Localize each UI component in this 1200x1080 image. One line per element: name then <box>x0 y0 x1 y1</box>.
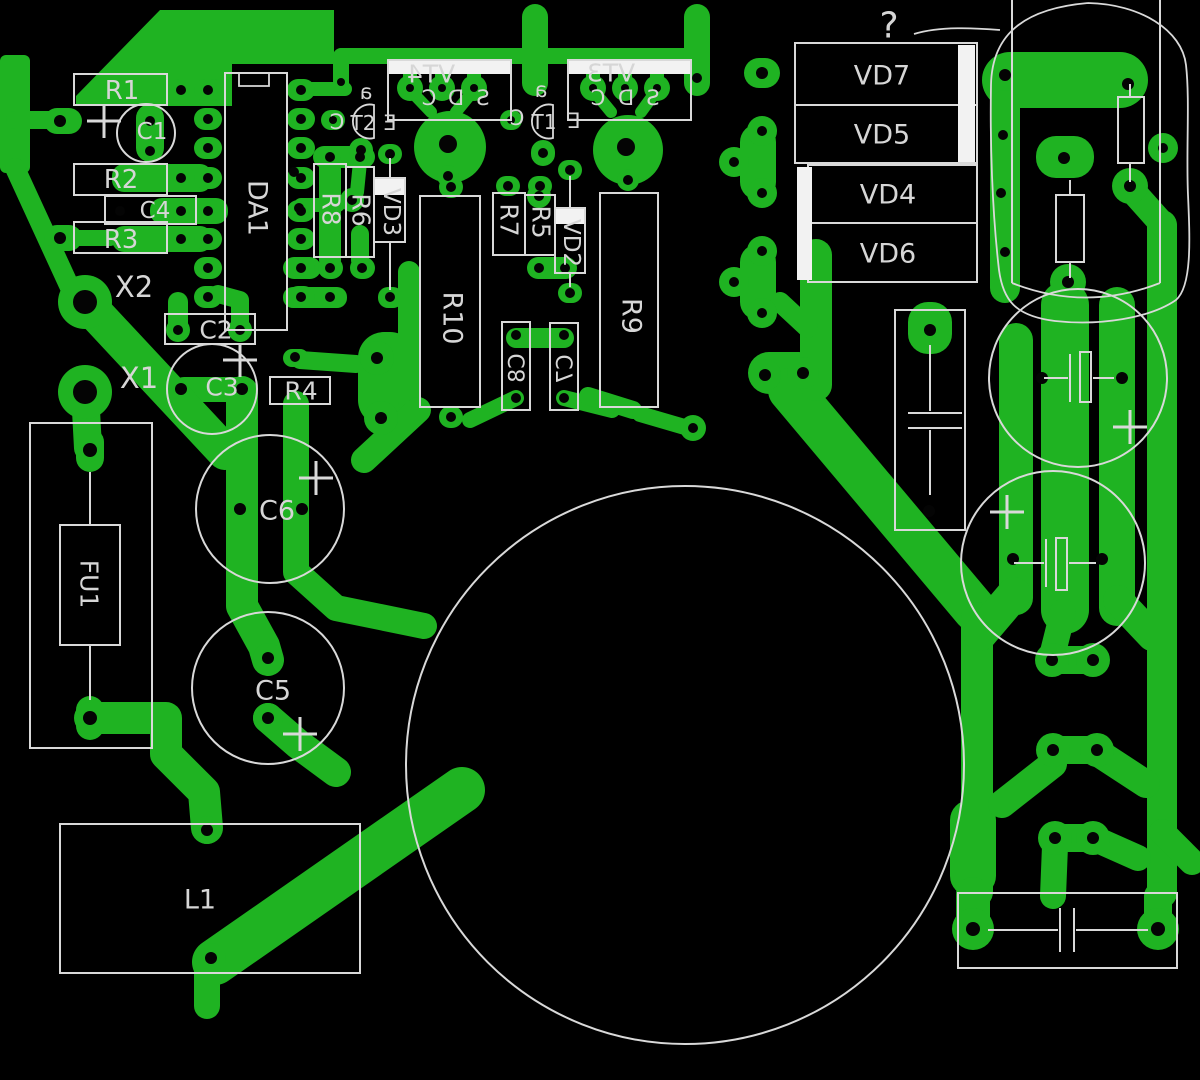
copper-trace <box>300 360 356 364</box>
component-label-r3: R3 <box>104 225 139 255</box>
component-label-r1: R1 <box>105 76 140 106</box>
drill-hole <box>1151 922 1165 936</box>
component-label-vd5: VD5 <box>854 120 910 151</box>
drill-hole <box>534 263 544 273</box>
component-label-fu1: FU1 <box>75 560 104 609</box>
drill-hole <box>173 325 183 335</box>
component-label-r5: R5 <box>527 205 556 238</box>
drill-hole <box>73 380 97 404</box>
drill-hole <box>203 85 213 95</box>
drill-hole <box>325 292 335 302</box>
drill-hole <box>729 157 739 167</box>
pcb-layout-image: R1C1R2C4R3X2X1C2C3R4C6C5L1VD7VD5VD4VD6?D… <box>0 0 1200 1080</box>
drill-hole <box>356 145 366 155</box>
component-label-da1: DA1 <box>242 180 273 236</box>
component-label-vd7: VD7 <box>854 61 910 92</box>
drill-hole <box>617 138 635 156</box>
component-label-r10: R10 <box>437 291 468 344</box>
component-label-s: S <box>646 86 659 110</box>
drill-hole <box>175 383 187 395</box>
component-label-a: a <box>535 78 548 102</box>
drill-hole <box>1091 744 1103 756</box>
component-label-vt3: VT3 <box>587 59 635 88</box>
drill-hole <box>797 367 809 379</box>
drill-hole <box>176 85 186 95</box>
drill-hole <box>203 206 213 216</box>
component-label-c: C <box>510 106 525 130</box>
drill-hole <box>203 292 213 302</box>
drill-hole <box>1047 744 1059 756</box>
drill-hole <box>559 330 569 340</box>
component-label-x2: X2 <box>115 270 153 304</box>
component-label-l1: L1 <box>184 885 216 916</box>
component-label-vd6: VD6 <box>860 239 916 270</box>
drill-hole <box>296 114 306 124</box>
drill-hole <box>176 173 186 183</box>
component-label-s: S <box>476 86 489 110</box>
drill-hole <box>371 352 383 364</box>
drill-hole <box>203 234 213 244</box>
drill-hole <box>290 352 300 362</box>
drill-hole <box>538 148 548 158</box>
drill-hole <box>145 146 155 156</box>
drill-hole <box>692 73 702 83</box>
drill-hole <box>996 188 1006 198</box>
drill-hole <box>999 69 1011 81</box>
drill-hole <box>1049 832 1061 844</box>
drill-hole <box>234 503 246 515</box>
drill-hole <box>1116 372 1128 384</box>
drill-hole <box>203 143 213 153</box>
drill-hole <box>565 165 575 175</box>
component-label-?: ? <box>879 6 898 47</box>
component-label-a: a <box>360 80 373 104</box>
component-label-vd3: VD3 <box>378 188 404 236</box>
drill-hole <box>503 181 513 191</box>
drill-hole <box>1122 78 1134 90</box>
component-label-r9: R9 <box>616 298 647 334</box>
component-label-c1: C1 <box>137 119 168 145</box>
drill-hole <box>1087 832 1099 844</box>
drill-hole <box>1062 276 1074 288</box>
drill-hole <box>559 393 569 403</box>
drill-hole <box>289 167 299 177</box>
drill-hole <box>357 263 367 273</box>
drill-hole <box>688 423 698 433</box>
drill-hole <box>729 277 739 287</box>
component-label-r7: R7 <box>495 203 524 236</box>
drill-hole <box>262 652 274 664</box>
drill-hole <box>176 206 186 216</box>
component-label-c7: C7 <box>554 354 579 383</box>
drill-hole <box>1096 553 1108 565</box>
component-label-r6: R6 <box>347 193 376 226</box>
drill-hole <box>757 308 767 318</box>
drill-hole <box>201 824 213 836</box>
component-label-t2: T2 <box>350 111 376 135</box>
drill-hole <box>54 115 66 127</box>
drill-hole <box>73 290 97 314</box>
drill-hole <box>262 712 274 724</box>
drill-hole <box>759 369 771 381</box>
component-label-c8: C8 <box>506 353 531 382</box>
component-marking-band <box>797 167 812 280</box>
component-label-d: D <box>448 86 464 110</box>
drill-hole <box>296 263 306 273</box>
component-label-vd2: VD2 <box>558 219 584 267</box>
drill-hole <box>325 263 335 273</box>
drill-hole <box>294 203 304 213</box>
drill-hole <box>296 503 308 515</box>
drill-hole <box>439 135 457 153</box>
component-label-d: D <box>618 86 634 110</box>
drill-hole <box>756 67 768 79</box>
component-marking-band <box>958 45 975 162</box>
drill-hole <box>446 412 456 422</box>
drill-hole <box>296 234 306 244</box>
component-label-e: E <box>383 111 396 135</box>
component-label-r8: R8 <box>317 192 346 225</box>
drill-hole <box>565 288 575 298</box>
drill-hole <box>296 85 306 95</box>
drill-hole <box>924 324 936 336</box>
drill-hole <box>54 232 66 244</box>
component-label-c4: C4 <box>140 198 171 224</box>
drill-hole <box>923 505 935 517</box>
drill-hole <box>511 393 521 403</box>
drill-hole <box>443 171 453 181</box>
drill-hole <box>203 114 213 124</box>
component-label-c3: C3 <box>205 373 238 402</box>
drill-hole <box>1087 654 1099 666</box>
component-label-x1: X1 <box>120 361 158 395</box>
component-label-vd4: VD4 <box>860 180 916 211</box>
drill-hole <box>385 149 395 159</box>
component-label-c: C <box>591 86 606 110</box>
drill-hole <box>511 330 521 340</box>
drill-hole <box>757 188 767 198</box>
component-label-e: E <box>567 109 580 133</box>
drill-hole <box>115 206 125 216</box>
drill-hole <box>385 292 395 302</box>
drill-hole <box>1058 152 1070 164</box>
component-label-c: C <box>422 86 437 110</box>
drill-hole <box>176 234 186 244</box>
drill-hole <box>83 443 97 457</box>
drill-hole <box>623 175 633 185</box>
component-label-c: C <box>330 110 345 134</box>
drill-hole <box>446 182 456 192</box>
drill-hole <box>757 126 767 136</box>
component-label-c5: C5 <box>255 676 291 707</box>
drill-hole <box>337 78 345 86</box>
component-label-vt4: VT4 <box>407 60 455 89</box>
drill-hole <box>757 246 767 256</box>
drill-hole <box>535 181 545 191</box>
drill-hole <box>296 292 306 302</box>
pcb-screenshot: R1C1R2C4R3X2X1C2C3R4C6C5L1VD7VD5VD4VD6?D… <box>0 0 1200 1080</box>
drill-hole <box>296 143 306 153</box>
drill-hole <box>1000 247 1010 257</box>
component-label-t1: T1 <box>531 110 557 134</box>
drill-hole <box>83 711 97 725</box>
component-label-r2: R2 <box>104 165 139 195</box>
drill-hole <box>205 952 217 964</box>
drill-hole <box>203 173 213 183</box>
drill-hole <box>998 130 1008 140</box>
component-label-c2: C2 <box>199 316 232 345</box>
component-label-r4: R4 <box>284 377 317 406</box>
drill-hole <box>325 152 335 162</box>
drill-hole <box>375 412 387 424</box>
component-label-c6: C6 <box>259 496 295 527</box>
drill-hole <box>966 922 980 936</box>
drill-hole <box>203 263 213 273</box>
